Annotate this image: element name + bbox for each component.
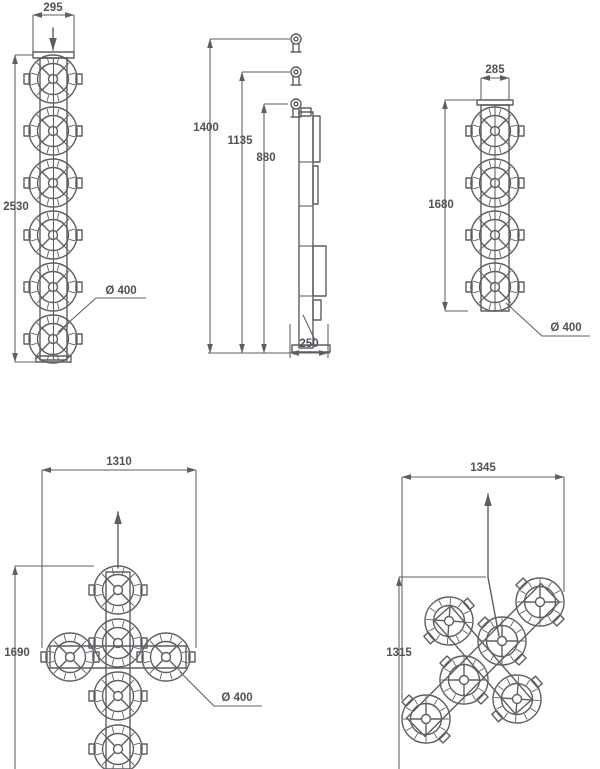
lamp-icon [503,565,578,640]
dim-label-diameter: Ø 400 [221,692,252,704]
dimension-height: 1680 [428,100,477,311]
dim-label-width: 1310 [106,456,132,468]
figure-cross-tilted: 1345 1315 [386,462,577,769]
dim-label-height: 1680 [428,199,454,211]
dim-label-width: 295 [43,2,63,14]
dim-label-full-height: 1400 [193,122,219,134]
dim-label-width: 285 [485,64,505,76]
fixture-body [50,512,186,769]
fixture-profile [292,108,330,352]
figure-front-six-lamp: 295 2530 Ø 400 [3,2,146,363]
figure-side-view: 1400 1135 880 250 [193,34,330,358]
lamp-icon [89,619,147,667]
dim-label-mid-height: 1135 [228,135,254,147]
technical-drawing-canvas: 295 2530 Ø 400 [0,0,600,769]
lifting-eye-icon [291,67,301,85]
lamp-icon [465,604,540,679]
dimension-width: 285 [481,64,509,100]
dim-label-height: 2530 [3,201,29,213]
lamp-icon [89,672,147,720]
figure-front-four-lamp: 285 1680 Ø 400 [428,64,590,336]
dimension-depth: 250 [208,324,330,358]
dimension-mid-height: 1135 [228,72,290,353]
lamp-icon [427,643,502,718]
dim-label-height: 1690 [4,647,30,659]
leader-diameter: Ø 400 [180,672,262,706]
dim-label-height: 1315 [386,647,412,659]
dim-label-depth: 250 [299,338,318,350]
lamp-icon [89,566,147,614]
lamp-icon [411,584,486,658]
lamp-icon [89,725,147,769]
figure-cross-upright: 1310 1690 Ø 400 [4,456,262,769]
lifting-eye-icon [291,34,301,52]
dimension-height: 2530 [3,55,36,362]
fixture-body [477,100,513,311]
lamp-icon [389,682,464,757]
dimension-lower-height: 880 [256,104,288,353]
drawing-svg: 295 2530 Ø 400 [0,0,600,769]
lamp-icon [479,662,554,736]
dim-label-diameter: Ø 400 [550,322,581,334]
dim-label-width: 1345 [470,462,496,474]
leader-diameter: Ø 400 [506,303,590,336]
dim-label-diameter: Ø 400 [105,285,136,297]
dim-label-lower-height: 880 [256,152,275,164]
